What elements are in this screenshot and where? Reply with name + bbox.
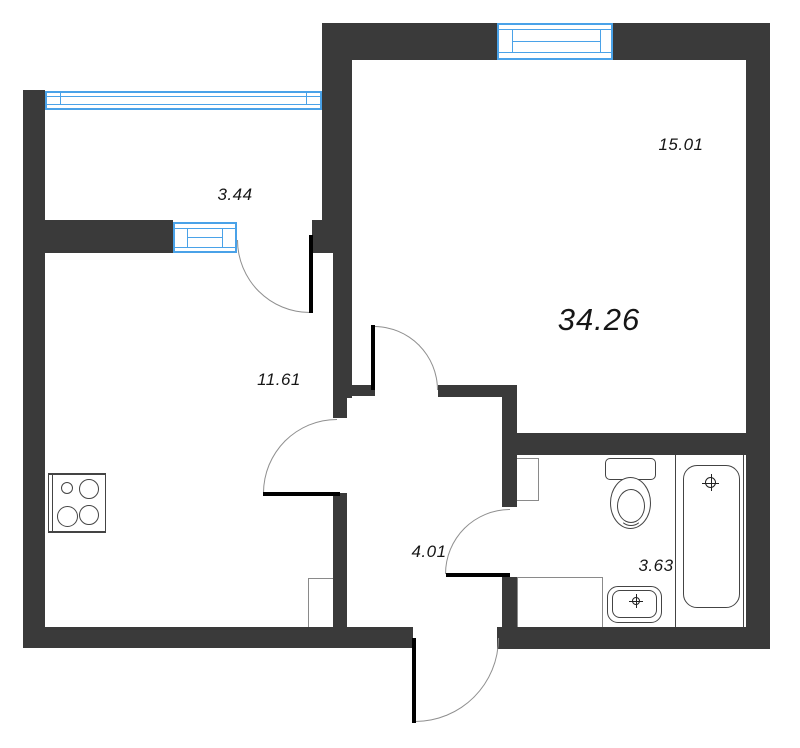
room-label-living-room: 15.01 — [641, 135, 721, 155]
wall-bottom-right — [497, 627, 770, 649]
floor-plan: 3.44 15.01 34.26 11.61 4.01 3.63 — [0, 0, 800, 748]
wall-right-outer — [746, 23, 770, 649]
stove-burner — [57, 506, 78, 527]
window-line — [187, 237, 223, 238]
bathroom-door-leaf — [446, 573, 510, 577]
bathtub-left-line — [675, 455, 676, 627]
room-label-bathroom: 3.63 — [616, 556, 696, 576]
entrance-door-arc — [415, 638, 499, 722]
toilet-bowl-arc — [620, 508, 642, 526]
stove-burner — [79, 479, 99, 499]
window-line — [174, 228, 236, 229]
window-mullion — [60, 92, 61, 105]
sink-faucet-icon — [629, 594, 643, 608]
window-mullion — [222, 228, 223, 248]
balcony-door-arc — [237, 240, 310, 313]
washer-niche — [517, 577, 603, 628]
stove-icon — [48, 473, 106, 533]
wall-kitchen-hall-mid — [333, 395, 347, 418]
bathtub-faucet-icon — [702, 474, 719, 491]
wall-kitchen-hall-lower — [333, 493, 347, 627]
wall-left-outer — [23, 90, 45, 648]
room-label-kitchen-living: 11.61 — [239, 370, 319, 390]
balcony-door-leaf — [309, 235, 313, 313]
wall-bathroom-left-lower — [502, 577, 517, 627]
room-label-balcony: 3.44 — [195, 185, 275, 205]
window-line — [46, 96, 321, 97]
kitchen-door-leaf — [263, 492, 340, 496]
window-line — [498, 52, 612, 53]
total-area-label: 34.26 — [529, 302, 669, 338]
wall-kitchen-hall-upper — [333, 253, 352, 398]
window-line — [498, 29, 612, 30]
wall-top-right-of-window — [613, 23, 746, 60]
window-mullion — [306, 92, 307, 105]
window-mullion — [187, 228, 188, 248]
balcony-window-icon — [45, 91, 322, 110]
living-room-door-arc — [374, 326, 438, 390]
wall-bottom-left — [23, 627, 413, 648]
duct-shaft — [308, 578, 336, 628]
wall-balcony-bottom-left — [23, 220, 173, 253]
stove-burner — [79, 505, 99, 525]
wall-bathroom-top — [502, 433, 770, 455]
room-label-hallway: 4.01 — [389, 542, 469, 562]
entrance-door-leaf — [412, 638, 416, 723]
stove-burner-small — [61, 482, 73, 494]
window-line — [174, 247, 236, 248]
stove-edge-line — [52, 474, 53, 532]
bathroom-shaft — [516, 458, 539, 501]
kitchen-door-arc — [263, 419, 337, 493]
wall-main-vertical — [322, 23, 352, 253]
window-line — [46, 104, 321, 105]
bathtub-right-line — [743, 455, 744, 627]
wall-balcony-bottom-right — [312, 220, 352, 253]
window-line — [512, 41, 601, 42]
living-room-door-leaf — [371, 325, 375, 390]
